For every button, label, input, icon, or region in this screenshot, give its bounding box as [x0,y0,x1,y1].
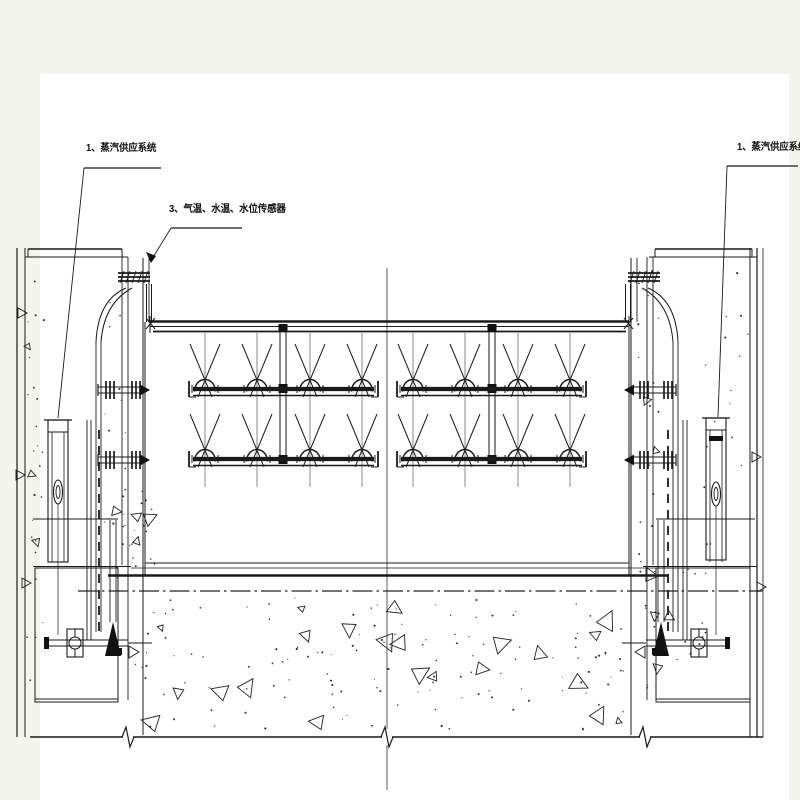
section-drawing [0,0,800,800]
drawing-canvas: 1、蒸汽供应系统 3、气温、水温、水位传感器 1、蒸汽供应系统 [0,0,800,800]
sheet [0,0,800,800]
callout-steam-supply-left: 1、蒸汽供应系统 [86,140,156,155]
callout-sensors: 3、气温、水温、水位传感器 [169,201,286,216]
callout-steam-supply-right: 1、蒸汽供应系统 [737,139,800,154]
